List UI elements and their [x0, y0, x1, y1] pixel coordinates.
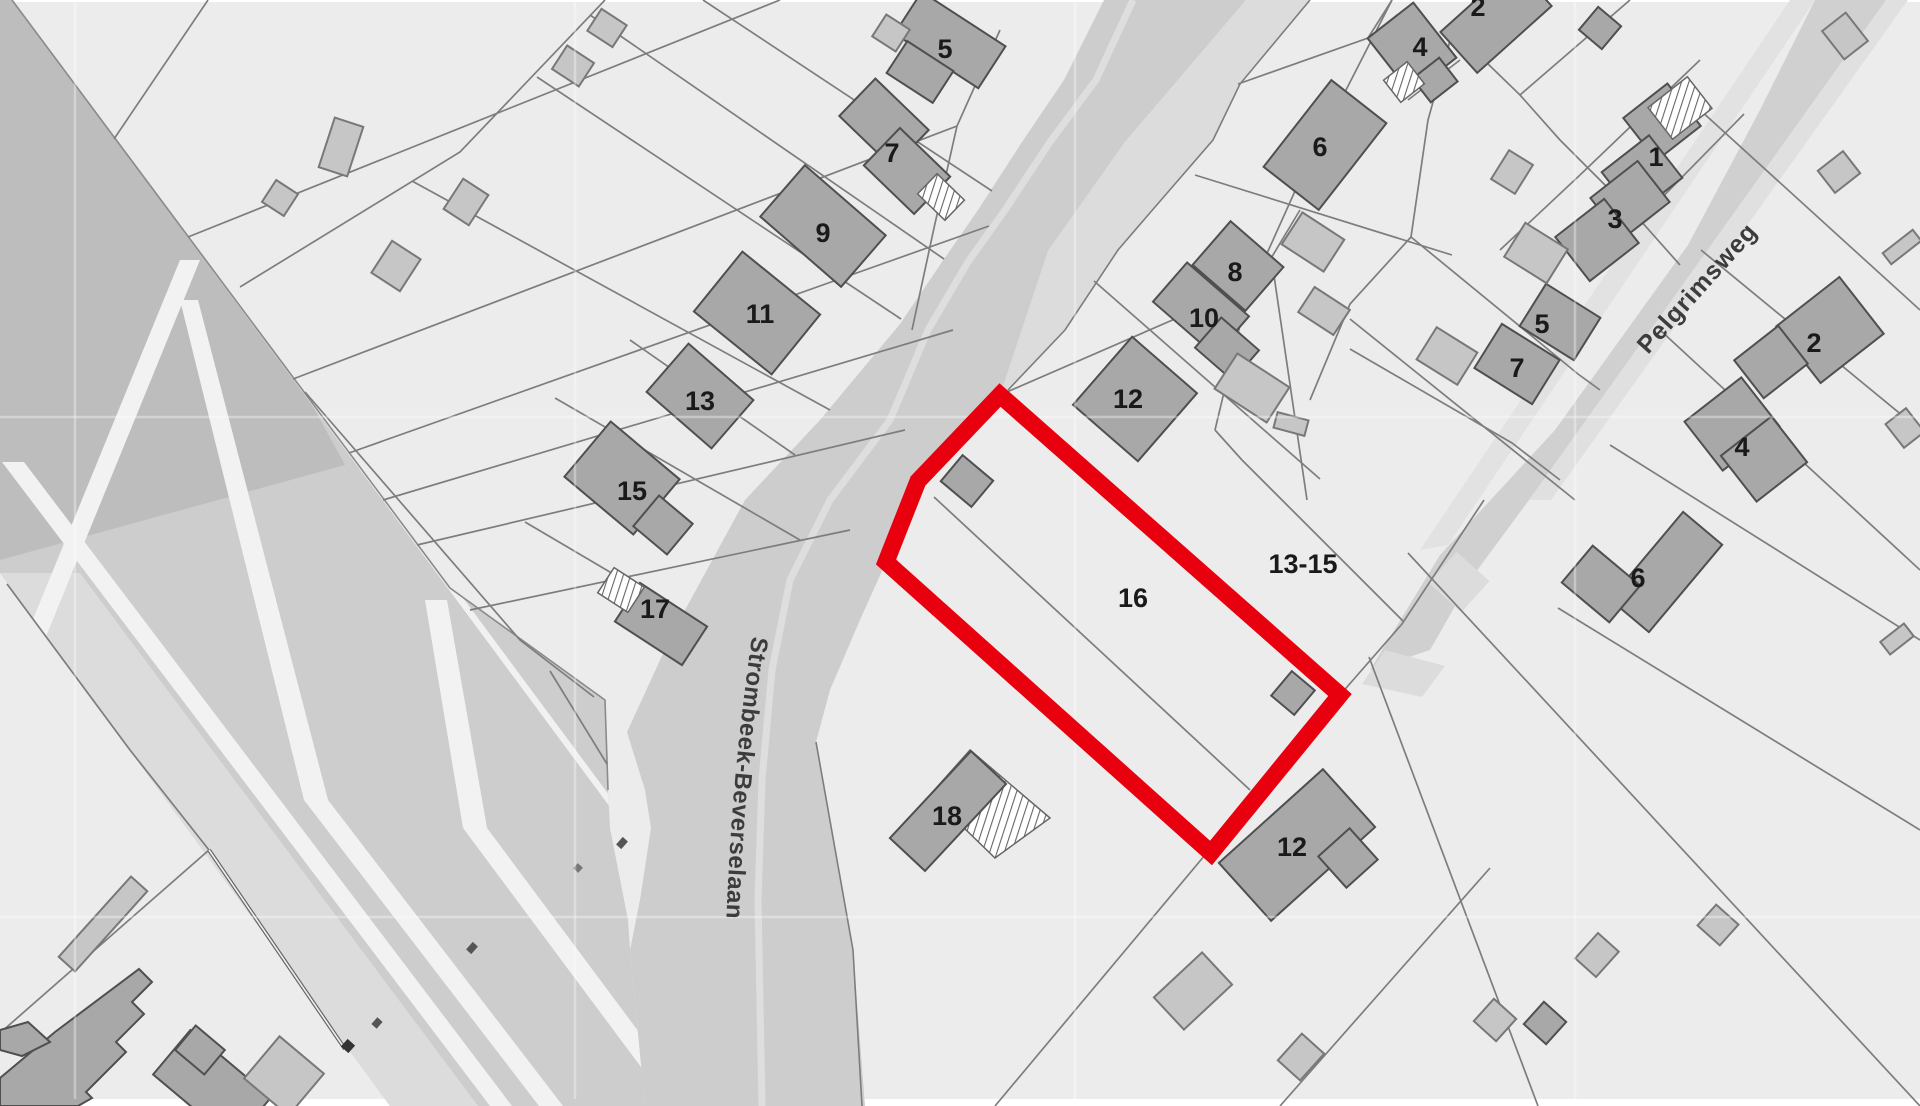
svg-text:13-15: 13-15: [1268, 549, 1337, 579]
svg-text:16: 16: [1118, 583, 1148, 613]
svg-text:1: 1: [1648, 142, 1663, 172]
svg-text:5: 5: [1534, 309, 1549, 339]
svg-text:6: 6: [1312, 132, 1327, 162]
svg-text:15: 15: [617, 476, 647, 506]
svg-text:11: 11: [746, 299, 775, 329]
svg-text:10: 10: [1189, 303, 1219, 333]
svg-text:7: 7: [1509, 353, 1524, 383]
svg-text:6: 6: [1630, 563, 1645, 593]
svg-text:12: 12: [1277, 832, 1307, 862]
svg-text:17: 17: [640, 594, 670, 624]
svg-text:4: 4: [1412, 32, 1427, 62]
svg-text:2: 2: [1470, 0, 1485, 22]
svg-text:13: 13: [685, 386, 715, 416]
svg-text:5: 5: [937, 34, 952, 64]
svg-text:7: 7: [884, 138, 899, 168]
svg-text:18: 18: [932, 801, 962, 831]
svg-text:3: 3: [1607, 204, 1622, 234]
svg-text:4: 4: [1734, 432, 1749, 462]
svg-text:9: 9: [815, 218, 830, 248]
svg-text:2: 2: [1806, 328, 1821, 358]
svg-text:12: 12: [1113, 384, 1143, 414]
svg-text:8: 8: [1227, 257, 1242, 287]
